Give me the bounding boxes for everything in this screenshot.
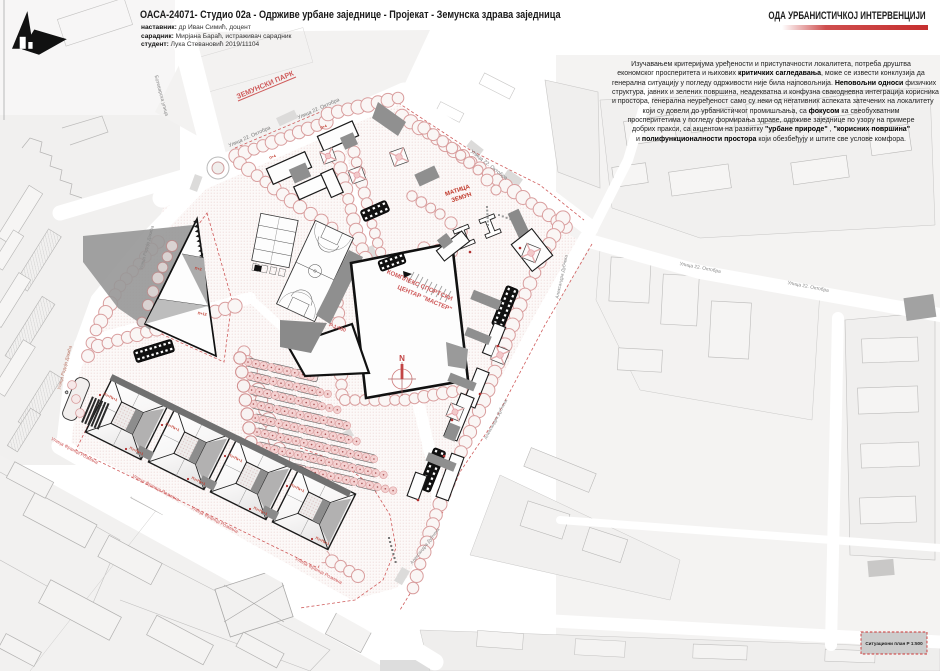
svg-text:Ситуациони план Р 1:500: Ситуациони план Р 1:500 xyxy=(865,641,923,646)
svg-text:N: N xyxy=(399,354,405,363)
